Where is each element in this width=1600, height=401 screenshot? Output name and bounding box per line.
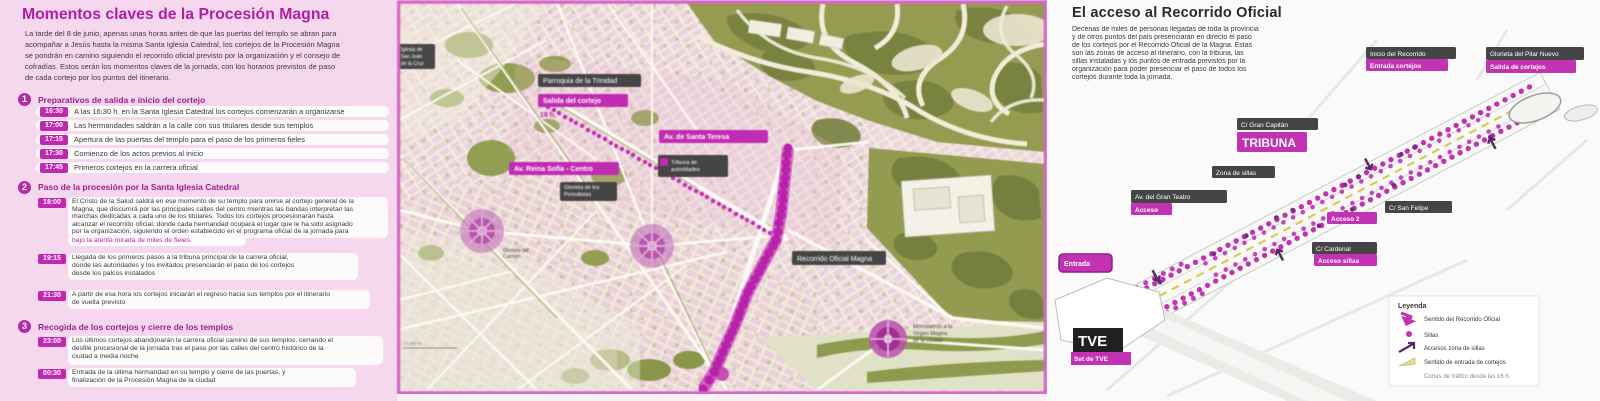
svg-text:TRIBUNA: TRIBUNA: [1242, 136, 1296, 150]
svg-text:Monumento a la: Monumento a la: [913, 324, 953, 330]
svg-text:San Juan: San Juan: [401, 54, 422, 60]
svg-text:Virgen Magna: Virgen Magna: [913, 331, 948, 337]
svg-text:Entrada: Entrada: [1064, 261, 1090, 268]
svg-text:de la ciudad: de la ciudad: [913, 338, 943, 344]
svg-text:C/ San Felipe: C/ San Felipe: [1389, 205, 1429, 212]
svg-text:C/ Gran Capitán: C/ Gran Capitán: [1241, 122, 1288, 129]
svg-text:Recorrido Oficial Magna: Recorrido Oficial Magna: [797, 256, 872, 263]
svg-text:Entrada cortejos: Entrada cortejos: [1370, 63, 1422, 70]
svg-text:Zona de sillas: Zona de sillas: [1216, 170, 1257, 177]
svg-text:Inicio del Recorrido: Inicio del Recorrido: [1370, 51, 1426, 58]
svg-text:Sillas: Sillas: [1424, 333, 1438, 339]
svg-text:Iglesia de: Iglesia de: [401, 47, 423, 53]
svg-text:de la Cruz: de la Cruz: [401, 61, 424, 67]
svg-text:Acceso sillas: Acceso sillas: [1318, 258, 1360, 265]
svg-text:Av. del Gran Teatro: Av. del Gran Teatro: [1135, 194, 1191, 201]
svg-text:Accesos zona de sillas: Accesos zona de sillas: [1424, 346, 1485, 352]
svg-text:Parroquia de la Trinidad: Parroquia de la Trinidad: [543, 78, 617, 85]
svg-text:Av. Reina Sofía - Centro: Av. Reina Sofía - Centro: [514, 166, 593, 173]
svg-text:C/ Cardenal: C/ Cardenal: [1316, 246, 1351, 253]
svg-text:18 h.: 18 h.: [540, 112, 556, 119]
svg-text:autoridades: autoridades: [671, 167, 700, 173]
svg-text:TVE: TVE: [1078, 333, 1107, 350]
svg-text:Acceso 2: Acceso 2: [1331, 216, 1360, 223]
svg-text:Salida de cortejos: Salida de cortejos: [1490, 64, 1546, 71]
svg-text:Acceso: Acceso: [1135, 207, 1158, 214]
svg-text:Glorieta de los: Glorieta de los: [564, 185, 600, 191]
svg-text:0 200 m: 0 200 m: [405, 341, 422, 346]
svg-text:Sentido del Recorrido Oficial: Sentido del Recorrido Oficial: [1424, 317, 1500, 323]
svg-text:Salida del cortejo: Salida del cortejo: [543, 98, 601, 105]
svg-text:Leyenda: Leyenda: [1398, 303, 1427, 310]
svg-text:Sentido de entrada de cortejos: Sentido de entrada de cortejos: [1424, 360, 1506, 366]
svg-text:Carmen: Carmen: [503, 254, 521, 260]
svg-text:Tribuna de: Tribuna de: [671, 160, 697, 166]
svg-text:Av. de Santa Teresa: Av. de Santa Teresa: [664, 134, 729, 141]
svg-text:Periodistas: Periodistas: [564, 192, 591, 198]
svg-text:Set de TVE: Set de TVE: [1074, 356, 1109, 363]
svg-text:Glorieta del Pilar Nuevo: Glorieta del Pilar Nuevo: [1490, 51, 1559, 58]
svg-text:Cortes de tráfico desde las 16: Cortes de tráfico desde las 16 h.: [1424, 374, 1511, 380]
